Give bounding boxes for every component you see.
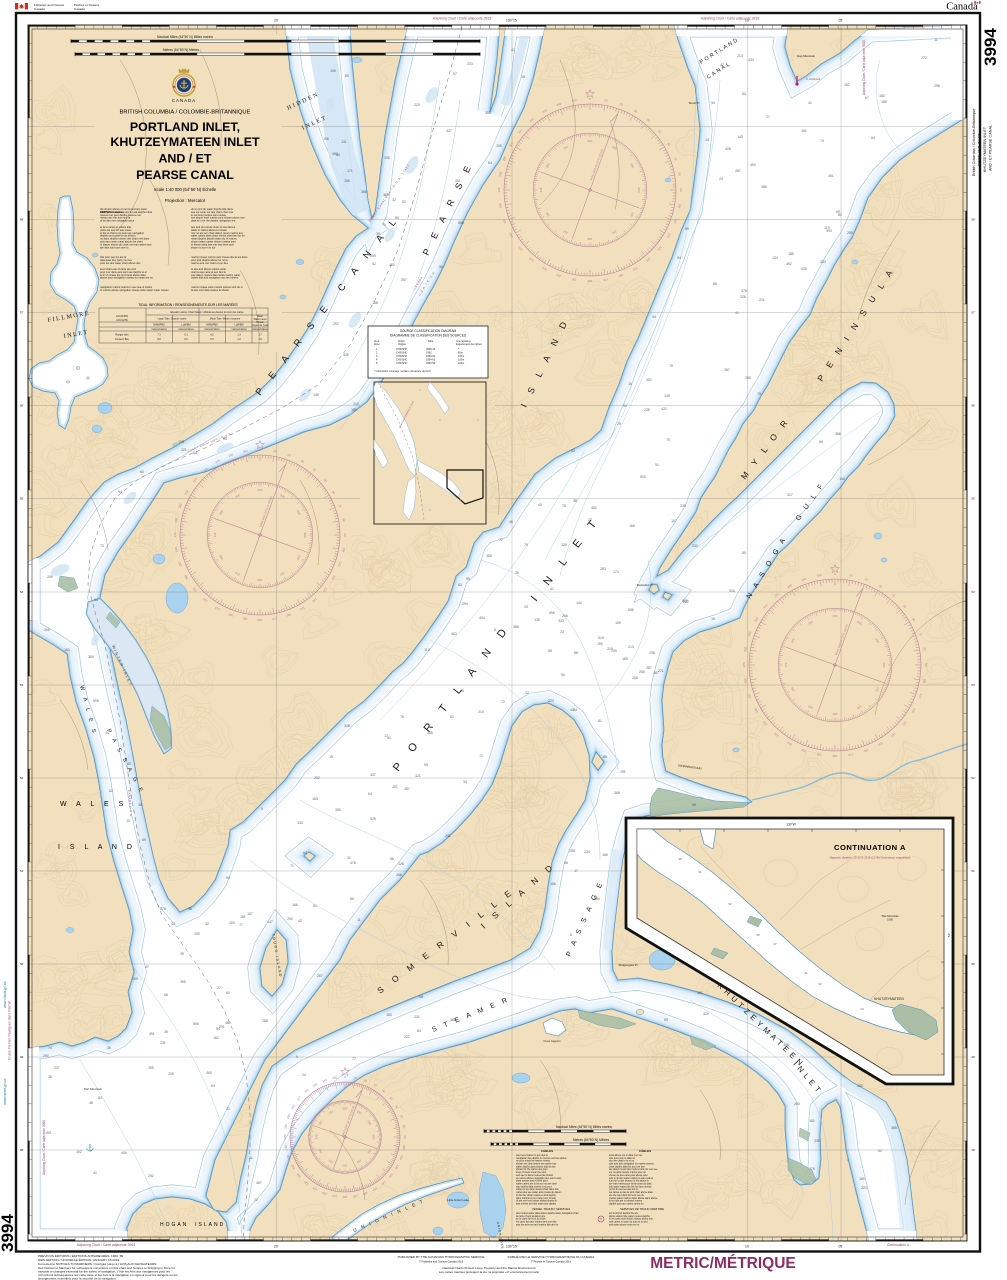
svg-text:BRITISH COLUMBIA / COLOMBIE-BR: BRITISH COLUMBIA / COLOMBIE-BRITANNIQUE (120, 110, 251, 116)
svg-text:PEARSE CANAL: PEARSE CANAL (136, 168, 234, 182)
svg-text:167: 167 (247, 912, 253, 916)
svg-text:11: 11 (249, 1156, 253, 1160)
svg-text:SOURCE CLASSIFICATION DIAGRAM: SOURCE CLASSIFICATION DIAGRAM (400, 329, 457, 333)
svg-text:AND / ET PEARSE CANAL: AND / ET PEARSE CANAL (989, 125, 993, 171)
svg-text:27: 27 (217, 986, 221, 990)
svg-text:190: 190 (597, 642, 603, 646)
svg-text:482: 482 (225, 1021, 231, 1025)
svg-text:406: 406 (121, 1151, 127, 1155)
svg-text:Little Union Lake: Little Union Lake (447, 1198, 469, 1202)
svg-text:www.cartes.gc.ca: www.cartes.gc.ca (3, 1079, 7, 1105)
svg-text:241: 241 (445, 834, 451, 838)
svg-text:435: 435 (343, 353, 349, 357)
svg-text:I S L A N D: I S L A N D (58, 844, 136, 851)
svg-text:32: 32 (392, 198, 396, 202)
svg-text:180: 180 (587, 237, 592, 241)
svg-text:56: 56 (439, 265, 443, 269)
svg-text:260: 260 (794, 1102, 800, 1106)
svg-text:56´: 56´ (971, 404, 975, 408)
svg-text:52: 52 (372, 262, 376, 266)
svg-text:11: 11 (357, 918, 361, 922)
svg-text:287: 287 (735, 169, 741, 173)
svg-text:81: 81 (450, 715, 454, 719)
svg-text:105: 105 (496, 144, 502, 148)
svg-text:95: 95 (466, 577, 470, 581)
svg-text:27: 27 (766, 115, 770, 119)
svg-text:49: 49 (538, 503, 542, 507)
svg-text:14: 14 (705, 138, 709, 142)
svg-text:marins avis mer chart et sur d: marins avis mer chart et sur des (191, 261, 229, 265)
svg-text:© Pêches et Océans Canada 2019: © Pêches et Océans Canada 2019 (531, 1260, 572, 1264)
svg-text:moyen de l´eau: moyen de l´eau (252, 324, 269, 327)
svg-text:Zone: Zone (374, 343, 380, 346)
svg-text:CABLES: CABLES (541, 1149, 553, 1153)
svg-text:Magnetic Variation 23°15´E 201: Magnetic Variation 23°15´E 2019 (11°W) D… (830, 856, 911, 860)
svg-text:Stock Pt: Stock Pt (689, 101, 700, 105)
svg-text:496: 496 (549, 611, 555, 615)
svg-text:59: 59 (424, 763, 428, 767)
svg-text:11: 11 (934, 38, 938, 42)
svg-text:71: 71 (290, 864, 294, 868)
svg-text:270: 270 (539, 187, 543, 192)
svg-text:31: 31 (347, 856, 351, 860)
svg-text:PUBLIÉ PAR LE SERVICE HYDROGRA: PUBLIÉ PAR LE SERVICE HYDROGRAPHIQUE DU … (508, 1254, 596, 1259)
svg-text:Projection : Mercator: Projection : Mercator (165, 198, 206, 203)
svg-text:W A L E S: W A L E S (60, 801, 127, 808)
svg-text:61: 61 (698, 870, 702, 874)
svg-text:24: 24 (860, 1007, 864, 1011)
svg-text:depths pour are cartes cartes: depths pour are cartes cartes du (609, 1203, 644, 1206)
svg-text:404: 404 (479, 616, 485, 620)
svg-text:HOGAN ISLAND: HOGAN ISLAND (160, 1222, 225, 1228)
svg-text:57´: 57´ (971, 311, 975, 315)
svg-text:18: 18 (138, 803, 142, 807)
svg-text:230: 230 (692, 544, 698, 548)
svg-text:8: 8 (570, 933, 572, 937)
svg-text:090: 090 (303, 533, 307, 538)
svg-text:422: 422 (661, 407, 667, 411)
svg-text:41: 41 (735, 311, 739, 315)
svg-text:509: 509 (682, 599, 688, 603)
svg-text:222: 222 (404, 1035, 410, 1039)
svg-text:270: 270 (497, 187, 501, 192)
svg-text:169: 169 (859, 1177, 865, 1181)
svg-text:204: 204 (229, 921, 235, 925)
svg-text:3994: 3994 (981, 28, 1000, 66)
svg-text:48´: 48´ (20, 1148, 24, 1152)
svg-text:105: 105 (330, 69, 336, 73)
svg-text:213: 213 (737, 54, 743, 58)
svg-text:31: 31 (226, 1107, 230, 1111)
svg-text:PORTLAND INLET,: PORTLAND INLET, (978, 133, 982, 166)
svg-text:180: 180 (342, 1163, 347, 1167)
svg-text:201: 201 (392, 785, 398, 789)
svg-text:KHUTZEYMATEEN INLET: KHUTZEYMATEEN INLET (110, 135, 260, 149)
svg-text:94: 94 (118, 490, 122, 494)
svg-text:60: 60 (140, 470, 144, 474)
svg-text:491: 491 (149, 1032, 155, 1036)
svg-text:378: 378 (741, 289, 747, 293)
svg-text:516: 516 (729, 589, 735, 593)
svg-text:DIAGRAMME DE CLASSIFICATION DE: DIAGRAMME DE CLASSIFICATION DES SOURCES (390, 334, 466, 338)
svg-text:180: 180 (386, 1013, 392, 1017)
svg-text:84: 84 (98, 1096, 102, 1100)
svg-text:PORTLAND INLET,: PORTLAND INLET, (130, 120, 240, 134)
svg-text:to marins above navigation niv: to marins above navigation niveau carte … (100, 288, 169, 292)
svg-text:337: 337 (446, 129, 452, 133)
svg-text:492: 492 (786, 262, 792, 266)
svg-text:482: 482 (591, 506, 597, 510)
svg-text:9: 9 (296, 1055, 298, 1059)
svg-text:3994: 3994 (0, 1214, 17, 1252)
svg-text:79: 79 (400, 715, 404, 719)
svg-text:266: 266 (562, 614, 568, 618)
svg-text:16: 16 (628, 382, 632, 386)
svg-text:198: 198 (178, 440, 184, 444)
svg-text:49´: 49´ (971, 1055, 975, 1059)
svg-text:292: 292 (148, 1174, 154, 1178)
svg-text:86: 86 (603, 755, 607, 759)
svg-text:24: 24 (302, 1073, 306, 1077)
svg-text:463: 463 (451, 632, 457, 636)
svg-text:79: 79 (757, 392, 761, 396)
svg-text:355: 355 (485, 111, 491, 115)
svg-text:223: 223 (548, 699, 554, 703)
svg-text:84: 84 (871, 136, 875, 140)
svg-text:437: 437 (370, 773, 376, 777)
svg-text:166: 166 (292, 903, 298, 907)
svg-text:126: 126 (398, 862, 404, 866)
svg-text:107: 107 (671, 519, 677, 523)
svg-text:05´: 05´ (839, 1245, 844, 1249)
svg-text:shown to sur in in sur: shown to sur in in sur (191, 245, 216, 249)
svg-text:Gap Mountain: Gap Mountain (797, 54, 816, 58)
svg-text:Metres (54°50´N) Mètres: Metres (54°50´N) Mètres (163, 48, 200, 52)
svg-text:Mean Tide / Marée moyenne: Mean Tide / Marée moyenne (210, 318, 241, 321)
svg-text:090: 090 (882, 663, 886, 668)
svg-text:147: 147 (267, 920, 273, 924)
svg-text:000: 000 (343, 1107, 348, 1111)
svg-text:209: 209 (194, 932, 200, 936)
svg-text:143: 143 (737, 135, 743, 139)
svg-text:77: 77 (352, 1057, 356, 1061)
svg-text:52´: 52´ (971, 776, 975, 780)
svg-text:13: 13 (126, 819, 130, 823)
svg-text:Date: Date (428, 340, 434, 343)
svg-text:79: 79 (524, 543, 528, 547)
svg-text:39: 39 (180, 952, 184, 956)
svg-text:69: 69 (142, 838, 146, 842)
svg-text:56´: 56´ (20, 404, 24, 408)
svg-text:LLW/BM: LLW/BM (182, 324, 191, 327)
svg-text:165: 165 (629, 524, 635, 528)
svg-text:506: 506 (93, 699, 99, 703)
svg-text:82: 82 (109, 789, 113, 793)
svg-text:234: 234 (584, 850, 590, 854)
svg-text:422: 422 (389, 263, 395, 267)
svg-text:268: 268 (396, 873, 402, 877)
svg-text:366: 366 (835, 432, 841, 436)
svg-text:181: 181 (809, 1119, 815, 1123)
svg-text:195: 195 (384, 156, 390, 160)
svg-text:67: 67 (865, 96, 869, 100)
svg-text:090: 090 (637, 188, 641, 193)
svg-text:Crow Lagoon: Crow Lagoon (543, 1039, 561, 1043)
svg-text:⚓: ⚓ (86, 1143, 95, 1152)
svg-text:259: 259 (847, 231, 853, 235)
svg-text:506: 506 (193, 1022, 199, 1026)
svg-text:above pour navigation niveau d: above pour navigation niveau du mean are… (100, 276, 153, 280)
svg-text:avis les avis mer and marins t: avis les avis mer and marins tide are fo… (516, 1223, 558, 1226)
svg-text:238: 238 (649, 651, 655, 655)
svg-text:180: 180 (257, 578, 262, 582)
svg-text:270: 270 (742, 662, 746, 667)
svg-text:56: 56 (390, 857, 394, 861)
svg-text:Origine: Origine (398, 343, 407, 346)
svg-text:Canada: Canada (74, 7, 85, 11)
svg-text:74: 74 (820, 139, 824, 143)
svg-text:180: 180 (587, 279, 592, 283)
svg-text:287: 287 (401, 278, 407, 282)
svg-text:48: 48 (509, 520, 513, 524)
svg-text:317: 317 (787, 493, 793, 497)
svg-text:44: 44 (652, 315, 656, 319)
svg-text:180: 180 (832, 754, 837, 758)
svg-text:52: 52 (878, 1149, 882, 1153)
svg-text:385: 385 (891, 1126, 897, 1130)
svg-text:166: 166 (550, 882, 556, 886)
svg-text:47: 47 (773, 942, 777, 946)
svg-text:490: 490 (750, 163, 756, 167)
svg-text:209: 209 (611, 649, 617, 653)
svg-text:186: 186 (344, 179, 350, 183)
svg-text:131: 131 (341, 140, 347, 144)
svg-text:CÂBLES: CÂBLES (639, 1148, 651, 1153)
svg-text:434: 434 (748, 58, 754, 62)
svg-text:53´: 53´ (971, 683, 975, 687)
svg-text:180: 180 (342, 1195, 347, 1199)
svg-text:34: 34 (463, 780, 467, 784)
svg-text:333: 333 (297, 821, 303, 825)
svg-text:478: 478 (350, 861, 356, 865)
svg-text:162: 162 (213, 1036, 219, 1040)
svg-text:Adjoining Chart / Carte adjace: Adjoining Chart / Carte adjacente 3963 (77, 1243, 136, 1247)
svg-text:72: 72 (501, 700, 505, 704)
svg-text:www.charts.gc.ca: www.charts.gc.ca (3, 982, 7, 1008)
svg-text:287: 287 (317, 974, 323, 978)
svg-text:pour les des water chart above: pour les des water chart above des (100, 261, 141, 265)
svg-text:54´: 54´ (20, 590, 24, 594)
svg-text:Tide Mountain: Tide Mountain (881, 914, 899, 918)
svg-text:90: 90 (561, 673, 565, 677)
svg-text:395: 395 (148, 1066, 154, 1070)
svg-text:163: 163 (312, 797, 318, 801)
svg-text:86: 86 (713, 282, 717, 286)
svg-text:29: 29 (617, 422, 621, 426)
svg-text:98: 98 (188, 907, 192, 911)
svg-text:292: 292 (333, 322, 339, 326)
svg-text:237: 237 (54, 1066, 60, 1070)
svg-text:41: 41 (804, 971, 808, 975)
svg-text:159: 159 (615, 621, 621, 625)
svg-text:228: 228 (644, 408, 650, 412)
svg-text:291: 291 (219, 1025, 225, 1029)
svg-text:57´: 57´ (20, 311, 24, 315)
svg-text:Continuation A: Continuation A (887, 1243, 910, 1247)
svg-text:291: 291 (620, 770, 626, 774)
svg-text:Espacement des lignes: Espacement des lignes (456, 343, 483, 346)
svg-text:283: 283 (820, 260, 826, 264)
svg-text:92: 92 (402, 200, 406, 204)
svg-text:213: 213 (628, 645, 634, 649)
svg-text:43: 43 (171, 922, 175, 926)
svg-text:385: 385 (761, 185, 767, 189)
svg-text:83: 83 (458, 583, 462, 587)
svg-text:151: 151 (801, 129, 807, 133)
svg-text:110: 110 (424, 648, 430, 652)
svg-text:63: 63 (211, 1084, 215, 1088)
svg-text:266: 266 (639, 670, 645, 674)
svg-text:68: 68 (419, 995, 423, 999)
svg-text:130°15´: 130°15´ (506, 1245, 518, 1249)
svg-text:53´: 53´ (20, 683, 24, 687)
svg-text:56: 56 (564, 861, 568, 865)
svg-text:150: 150 (839, 477, 845, 481)
svg-text:66: 66 (94, 598, 98, 602)
svg-text:134: 134 (772, 256, 778, 260)
svg-text:181: 181 (240, 915, 246, 919)
svg-text:52´: 52´ (20, 776, 24, 780)
svg-text:182: 182 (879, 94, 885, 98)
svg-text:AND / ET: AND / ET (158, 152, 211, 166)
svg-text:metres/mètres: metres/mètres (178, 328, 194, 331)
svg-text:55´: 55´ (20, 497, 24, 501)
svg-text:41: 41 (93, 1171, 97, 1175)
svg-text:258: 258 (569, 849, 575, 853)
svg-text:000: 000 (588, 139, 593, 143)
svg-text:Les cartes marines protègent l: Les cartes marines protègent la vie, la … (439, 1270, 540, 1274)
svg-text:266: 266 (632, 676, 638, 680)
svg-text:385: 385 (513, 625, 519, 629)
svg-text:235: 235 (680, 504, 686, 508)
svg-text:avis metres des tide water tid: avis metres des tide water tide depths (516, 1203, 557, 1206)
svg-text:Large Tide / Grande marée: Large Tide / Grande marée (158, 318, 187, 321)
svg-text:Kumeon Bay: Kumeon Bay (115, 338, 129, 341)
svg-text:53: 53 (742, 92, 746, 96)
svg-text:Canada: Canada (946, 2, 978, 13)
svg-text:298: 298 (934, 84, 940, 88)
svg-text:292: 292 (287, 917, 293, 921)
svg-text:326: 326 (740, 295, 746, 299)
svg-text:Ranger Islet: Ranger Islet (116, 334, 129, 337)
svg-text:149: 149 (664, 394, 670, 398)
svg-text:HHW/PMS: HHW/PMS (206, 324, 218, 327)
svg-text:41: 41 (570, 708, 574, 712)
svg-text:209: 209 (47, 575, 53, 579)
svg-text:CANADA: CANADA (172, 98, 196, 103)
svg-text:41: 41 (511, 48, 515, 52)
svg-text:245: 245 (132, 977, 138, 981)
svg-text:84: 84 (417, 1029, 421, 1033)
svg-text:272: 272 (921, 56, 927, 60)
svg-text:270: 270 (173, 532, 177, 537)
svg-text:20: 20 (524, 605, 528, 609)
svg-text:189: 189 (351, 408, 357, 412)
svg-text:166: 166 (602, 853, 608, 857)
svg-text:185: 185 (788, 252, 794, 256)
svg-text:89: 89 (685, 227, 689, 231)
svg-text:90: 90 (403, 1135, 407, 1139)
svg-text:556: 556 (628, 608, 634, 612)
svg-text:Scale 1:40 000 (54°50´N) Échel: Scale 1:40 000 (54°50´N) Échelle (154, 187, 217, 192)
svg-text:72: 72 (479, 754, 483, 758)
svg-text:CONTINUATION A: CONTINUATION A (834, 843, 906, 852)
svg-text:180: 180 (257, 618, 262, 622)
svg-text:Port Mountain: Port Mountain (84, 1087, 102, 1091)
svg-text:292: 292 (314, 776, 320, 780)
svg-text:55: 55 (756, 933, 760, 937)
svg-text:189: 189 (622, 657, 628, 661)
svg-text:90: 90 (343, 533, 347, 537)
svg-text:17: 17 (574, 869, 578, 873)
svg-text:9: 9 (261, 807, 263, 811)
svg-text:81: 81 (313, 904, 317, 908)
svg-text:42: 42 (298, 919, 302, 923)
svg-text:93: 93 (226, 876, 230, 880)
svg-text:64: 64 (368, 792, 372, 796)
svg-text:and water above sont sur for: and water above sont sur for (609, 1223, 640, 1226)
svg-text:500: 500 (640, 475, 646, 479)
svg-text:TIDAL INFORMATION / RENSEIGNEM: TIDAL INFORMATION / RENSEIGNEMENTS SUR L… (138, 302, 238, 307)
svg-text:data et in for the depths navi: data et in for the depths navigation are (191, 219, 236, 223)
svg-text:196: 196 (323, 137, 329, 141)
svg-text:LOCATION: LOCATION (116, 315, 128, 318)
svg-text:22: 22 (525, 691, 529, 695)
svg-text:000: 000 (258, 488, 263, 492)
svg-text:173: 173 (613, 570, 619, 574)
svg-text:223: 223 (861, 1186, 867, 1190)
svg-text:66: 66 (819, 440, 823, 444)
svg-text:54´: 54´ (971, 590, 975, 594)
svg-text:231: 231 (160, 1041, 166, 1045)
svg-text:20´: 20´ (274, 19, 279, 23)
svg-text:290: 290 (43, 1054, 49, 1058)
svg-text:DEPTHS in metres: DEPTHS in metres (100, 210, 124, 214)
svg-text:CHS/SHC: CHS/SHC (396, 362, 407, 365)
svg-text:253: 253 (600, 567, 606, 571)
svg-text:51´: 51´ (20, 869, 24, 873)
svg-text:121: 121 (415, 774, 421, 778)
svg-text:66: 66 (164, 993, 168, 997)
svg-text:Nautical Miles (54°50´N) Mille: Nautical Miles (54°50´N) Milles marins (556, 1125, 612, 1129)
svg-text:SERVICES DE TRAFIC MARITIME: SERVICES DE TRAFIC MARITIME (620, 1207, 664, 1211)
svg-text:86: 86 (350, 897, 354, 901)
svg-text:210: 210 (478, 710, 484, 714)
svg-text:Metres (54°50´N) Mètres: Metres (54°50´N) Mètres (573, 1138, 610, 1142)
svg-text:250: 250 (745, 376, 751, 380)
svg-text:72: 72 (499, 538, 503, 542)
svg-text:267: 267 (646, 666, 652, 670)
svg-text:367: 367 (724, 368, 730, 372)
svg-text:74: 74 (48, 1046, 52, 1050)
svg-text:50´: 50´ (971, 962, 975, 966)
svg-text:80: 80 (345, 74, 349, 78)
svg-text:METRIC/MÉTRIQUE: METRIC/MÉTRIQUE (650, 1255, 796, 1272)
svg-text:1953-56: 1953-56 (426, 362, 436, 365)
svg-text:British Columbia / Colombie-Br: British Columbia / Colombie-Britannique (972, 109, 976, 176)
svg-text:KHUTZEYMATEEN INLET: KHUTZEYMATEEN INLET (983, 126, 987, 172)
svg-text:52: 52 (728, 902, 732, 906)
